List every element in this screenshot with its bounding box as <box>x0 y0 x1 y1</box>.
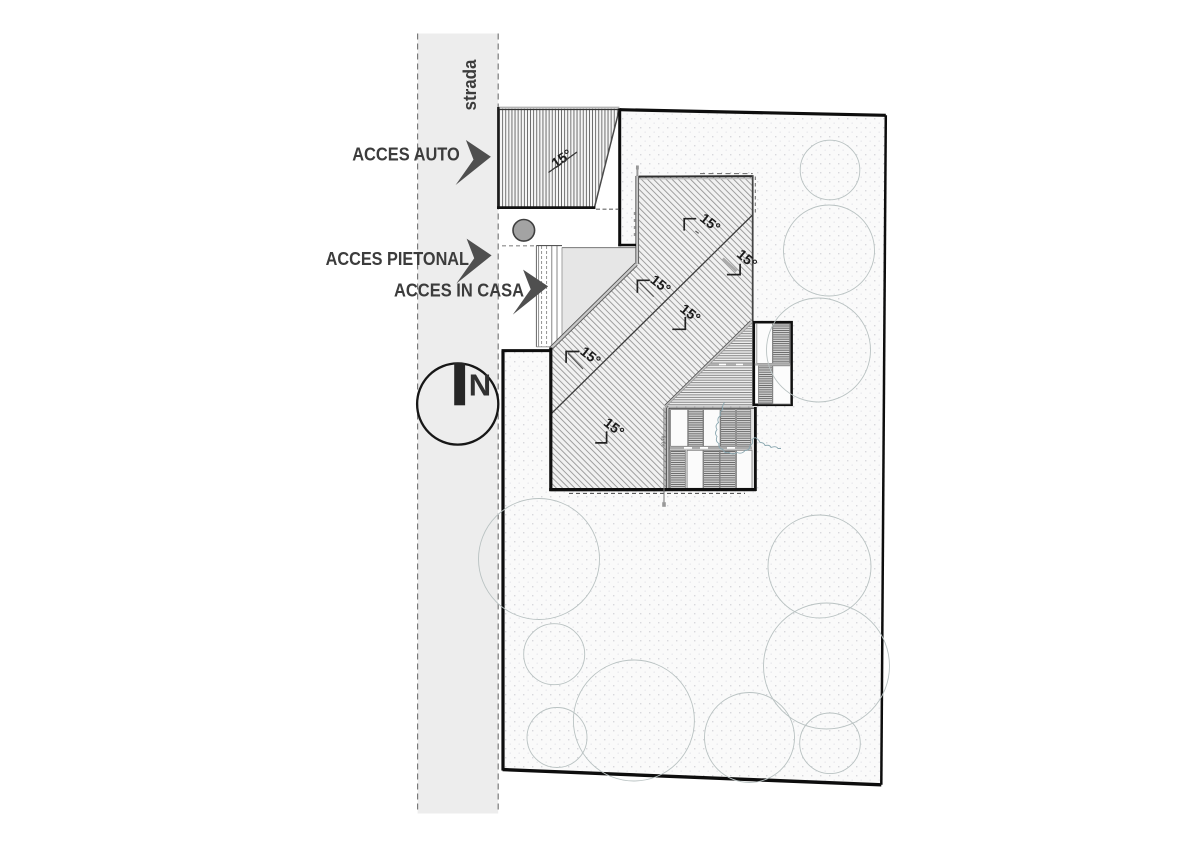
svg-text:ACCES IN CASA: ACCES IN CASA <box>394 281 524 301</box>
svg-text:ACCES PIETONAL: ACCES PIETONAL <box>326 249 469 269</box>
svg-text:N: N <box>469 368 491 403</box>
svg-text:ACCES AUTO: ACCES AUTO <box>352 145 460 165</box>
svg-text:strada: strada <box>460 59 480 111</box>
svg-text:10.70: 10.70 <box>661 435 666 447</box>
